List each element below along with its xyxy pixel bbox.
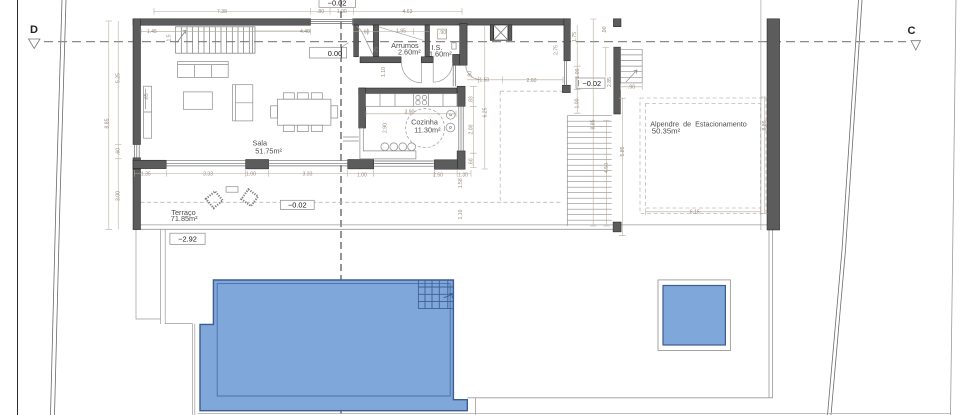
svg-text:6.15: 6.15 — [690, 210, 700, 216]
svg-text:.60: .60 — [469, 158, 475, 165]
svg-text:.90: .90 — [602, 26, 608, 33]
svg-text:1.00: 1.00 — [575, 98, 581, 108]
svg-text:2.60m²: 2.60m² — [398, 47, 421, 56]
svg-text:7.38: 7.38 — [217, 9, 227, 15]
svg-text:2.50: 2.50 — [433, 173, 443, 179]
svg-text:71.85m²: 71.85m² — [171, 214, 198, 223]
svg-text:1.95: 1.95 — [396, 29, 406, 35]
svg-text:4.50: 4.50 — [604, 163, 610, 173]
svg-text:3.00: 3.00 — [115, 191, 121, 201]
svg-text:−2.92: −2.92 — [178, 234, 197, 243]
svg-text:4.63: 4.63 — [403, 9, 413, 15]
svg-text:2.85: 2.85 — [607, 77, 613, 87]
svg-text:6.25: 6.25 — [482, 107, 488, 117]
svg-text:4.40: 4.40 — [300, 29, 310, 35]
svg-text:C: C — [908, 25, 916, 37]
svg-text:1.35: 1.35 — [141, 171, 151, 177]
svg-text:3.33: 3.33 — [203, 171, 213, 177]
svg-text:−0.02: −0.02 — [328, 0, 347, 7]
svg-text:2.00: 2.00 — [469, 124, 475, 134]
svg-text:1.45: 1.45 — [147, 29, 157, 35]
svg-text:1.10: 1.10 — [458, 209, 464, 219]
svg-text:2.75: 2.75 — [553, 45, 559, 55]
svg-text:2.60: 2.60 — [527, 78, 537, 84]
svg-text:1.75: 1.75 — [572, 32, 578, 42]
svg-text:1.10: 1.10 — [381, 67, 387, 77]
svg-text:1.60m²: 1.60m² — [429, 50, 452, 59]
svg-text:50.35m²: 50.35m² — [652, 126, 681, 135]
svg-text:1.50: 1.50 — [479, 77, 489, 83]
svg-text:1.00: 1.00 — [357, 173, 367, 179]
svg-text:1.58: 1.58 — [458, 178, 464, 188]
svg-text:.65: .65 — [144, 93, 150, 100]
svg-text:−0.02: −0.02 — [582, 79, 601, 88]
svg-text:1.90: 1.90 — [337, 9, 347, 15]
svg-text:3.33: 3.33 — [303, 171, 313, 177]
svg-text:8.85: 8.85 — [591, 119, 597, 129]
svg-text:.90: .90 — [468, 71, 474, 78]
svg-text:.75: .75 — [374, 47, 380, 54]
svg-text:0.00: 0.00 — [328, 49, 342, 58]
svg-text:.83: .83 — [469, 96, 475, 103]
svg-text:51.75m²: 51.75m² — [255, 147, 282, 156]
svg-text:8.85: 8.85 — [762, 120, 768, 130]
svg-text:3.90: 3.90 — [405, 110, 415, 116]
svg-text:.80: .80 — [317, 9, 324, 15]
svg-text:−0.02: −0.02 — [288, 201, 307, 210]
svg-text:1.5: 1.5 — [166, 34, 172, 41]
svg-text:2.90: 2.90 — [383, 123, 389, 133]
svg-text:11.30m²: 11.30m² — [414, 125, 441, 134]
svg-text:8.85: 8.85 — [105, 118, 111, 128]
svg-text:1.00: 1.00 — [246, 171, 256, 177]
svg-text:1.30: 1.30 — [458, 173, 468, 179]
svg-text:1.00: 1.00 — [575, 68, 581, 78]
svg-text:5.25: 5.25 — [115, 73, 121, 83]
svg-text:.60: .60 — [115, 148, 121, 155]
svg-text:5.85: 5.85 — [620, 146, 626, 156]
svg-text:.60: .60 — [362, 30, 369, 36]
svg-text:.90: .90 — [628, 85, 635, 91]
svg-text:D: D — [30, 24, 38, 36]
svg-text:.90: .90 — [439, 30, 446, 36]
